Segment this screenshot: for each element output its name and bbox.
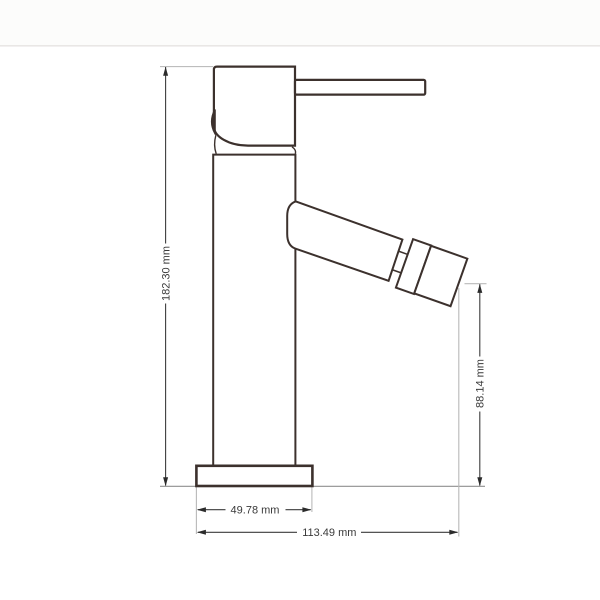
svg-text:88.14 mm: 88.14 mm xyxy=(474,359,486,408)
svg-text:182.30 mm: 182.30 mm xyxy=(160,246,172,301)
svg-text:49.78 mm: 49.78 mm xyxy=(231,504,280,516)
svg-text:113.49 mm: 113.49 mm xyxy=(302,527,356,539)
